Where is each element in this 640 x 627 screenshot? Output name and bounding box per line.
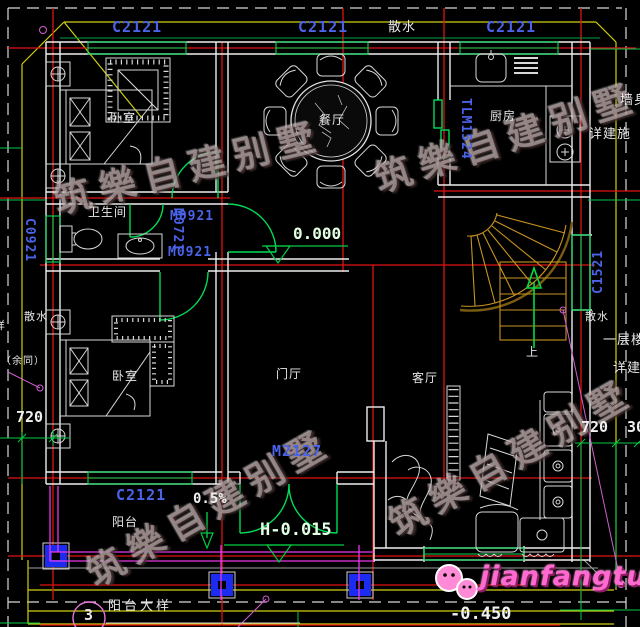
level-entry: H-0.015: [260, 522, 332, 539]
annotation-xiang-jianshi-paren: 详建施（全: [589, 128, 640, 141]
room-label-kitchen: 厨房: [490, 110, 516, 122]
room-label-bedroom-bottom: 卧室: [112, 370, 138, 382]
dim-left-720: 720: [16, 410, 43, 425]
site-logo-text: jianfangtuzhi: [480, 563, 640, 590]
window-label-c2121-top-mid: C2121: [298, 20, 348, 35]
dim-right-300: 300: [627, 420, 640, 435]
dim-right-720: 720: [581, 420, 608, 435]
room-label-balcony: 阳台: [112, 516, 138, 528]
room-label-living: 客厅: [412, 372, 438, 384]
window-label-c2121-top-right: C2121: [486, 20, 536, 35]
annotation-sanshui-left: 散水: [24, 311, 48, 322]
annotation-sanshui-right: 散水: [585, 311, 609, 322]
door-label-m2127: M2127: [272, 444, 322, 459]
annotation-yang-partial: 样: [0, 320, 6, 331]
door-label-tlm1524: TLM1524: [459, 98, 472, 160]
door-label-m0921-lower: M0921: [168, 246, 212, 259]
window-label-c2121-top-left: C2121: [112, 20, 162, 35]
detail-callout-label: 阳台大样: [108, 600, 172, 613]
level-ground: -0.450: [450, 606, 511, 623]
detail-callout-number: 3: [84, 608, 93, 623]
floorplan-page: 筑樂自建别墅 筑樂自建别墅 筑樂自建别墅 筑樂自建别墅 C2121 C2121 …: [0, 0, 640, 627]
annotation-yu-tong: （余同）: [1, 357, 45, 367]
kitchen-sink: [476, 50, 506, 82]
annotation-sanshui-top: 散水: [388, 21, 416, 34]
room-label-bathroom: 卫生间: [88, 206, 127, 218]
window-label-c1521-right: C1521: [592, 250, 605, 294]
toilet: [60, 226, 102, 252]
stair-direction-arrow: [527, 268, 541, 348]
bathroom-sink: [118, 234, 162, 258]
window-label-c0921-left: C0921: [23, 218, 36, 262]
room-label-bedroom-top: 卧室: [110, 112, 136, 124]
annotation-yiceng-louti: 一层楼梯: [603, 334, 640, 347]
staircase: [460, 213, 572, 340]
kitchen-rack: [514, 58, 538, 73]
annotation-stair-up: 上: [526, 346, 539, 358]
annotation-xiang-jianshi: 详建施: [613, 362, 640, 375]
annotation-qiang-shen: 墙身: [620, 94, 640, 107]
room-label-dining: 餐厅: [319, 114, 345, 126]
annotation-slope: 0.5%: [193, 492, 227, 506]
window-label-c2121-bottom: C2121: [116, 488, 166, 503]
level-floor: 0.000: [293, 226, 341, 242]
logo-icon: [436, 565, 477, 599]
room-label-foyer: 门厅: [276, 368, 302, 380]
